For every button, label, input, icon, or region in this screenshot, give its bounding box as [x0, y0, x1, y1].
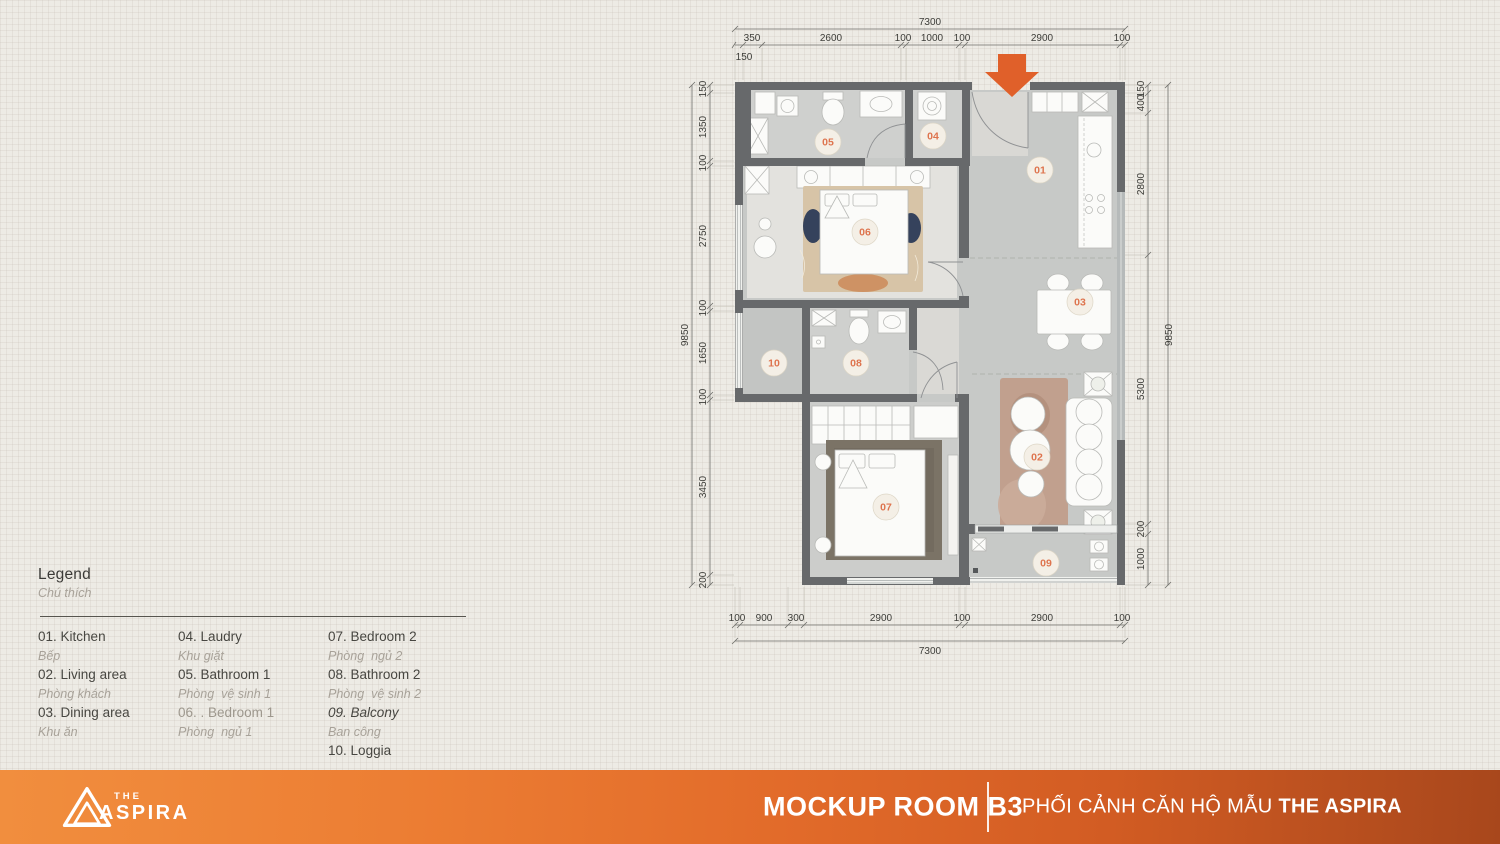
svg-text:1000: 1000: [921, 33, 944, 44]
legend-label: Loggia: [351, 743, 392, 758]
svg-text:9850: 9850: [680, 323, 691, 346]
room-badge-laundry: 04: [920, 123, 946, 149]
svg-text:2800: 2800: [1136, 172, 1147, 195]
svg-text:1650: 1650: [698, 341, 709, 364]
living-furniture: [998, 372, 1112, 534]
legend-label-vi: Phòng khách: [38, 685, 178, 704]
legend-column-1: 01. Kitchen Bếp 02. Living area Phòng kh…: [38, 628, 178, 762]
svg-text:09: 09: [1040, 558, 1052, 570]
legend-label: Bedroom 1: [208, 705, 274, 720]
floor-plan-drawing: 7300 350 2600 100 1000 100 2900 100 150 …: [680, 0, 1180, 660]
aspira-logo-text: THE ASPIRA: [99, 791, 190, 825]
room-badge-bedroom-2: 07: [873, 494, 899, 520]
room-badge-bedroom-1: 06: [852, 219, 878, 245]
footer-bar: THE ASPIRA MOCKUP ROOM B3 PHỐI CẢNH CĂN …: [0, 770, 1500, 844]
legend-label: Living area: [61, 667, 127, 682]
svg-text:2900: 2900: [1031, 613, 1054, 624]
room-badge-dining-area: 03: [1067, 289, 1093, 315]
legend-label-vi: Phòng vệ sinh 1: [178, 685, 328, 704]
svg-text:100: 100: [895, 33, 912, 44]
legend-item-dining-area: 03. Dining area Khu ăn: [38, 704, 178, 741]
legend-num: 05.: [178, 667, 197, 682]
svg-text:2750: 2750: [698, 224, 709, 247]
room-badge-balcony: 09: [1033, 550, 1059, 576]
legend-label: Dining area: [61, 705, 130, 720]
legend-label-vi: Khu ăn: [38, 723, 178, 742]
svg-text:01: 01: [1034, 165, 1046, 177]
svg-text:100: 100: [954, 613, 971, 624]
legend-item-bedroom-1: 06. . Bedroom 1 Phòng ngủ 1: [178, 704, 328, 741]
legend-label: Laudry: [201, 629, 242, 644]
svg-text:1350: 1350: [698, 115, 709, 138]
svg-text:100: 100: [729, 613, 746, 624]
footer-caption: PHỐI CẢNH CĂN HỘ MẪUTHE ASPIRA: [1022, 796, 1402, 819]
legend-item-laundry: 04. Laudry Khu giặt: [178, 628, 328, 665]
legend-label-vi: Bếp: [38, 647, 178, 666]
slide-page: { "legend": { "title": "Legend", "subtit…: [0, 0, 1500, 844]
legend-item-bathroom-1: 05. Bathroom 1 Phòng vệ sinh 1: [178, 666, 328, 703]
svg-text:300: 300: [788, 613, 805, 624]
svg-text:9850: 9850: [1164, 323, 1175, 346]
legend-label: Bathroom 1: [201, 667, 271, 682]
svg-text:2900: 2900: [870, 613, 893, 624]
svg-text:150: 150: [736, 52, 753, 63]
svg-text:7300: 7300: [919, 646, 942, 657]
legend-item-bathroom-2: 08. Bathroom 2 Phòng vệ sinh 2: [328, 666, 468, 703]
aspira-logo: THE ASPIRA: [62, 786, 190, 828]
svg-text:04: 04: [927, 131, 939, 143]
room-badge-bathroom-2: 08: [843, 350, 869, 376]
svg-text:08: 08: [850, 358, 862, 370]
legend-item-loggia: 10. Loggia: [328, 742, 468, 761]
svg-text:02: 02: [1031, 452, 1043, 464]
svg-text:03: 03: [1074, 297, 1086, 309]
svg-text:5300: 5300: [1136, 377, 1147, 400]
legend-num: 03.: [38, 705, 57, 720]
floor-plan: 7300 350 2600 100 1000 100 2900 100 150 …: [680, 0, 1180, 660]
legend: Legend Chú thích 01. Kitchen Bếp 02. Liv…: [38, 566, 508, 762]
svg-text:06: 06: [859, 227, 871, 239]
legend-num: 02.: [38, 667, 57, 682]
svg-text:1000: 1000: [1136, 547, 1147, 570]
legend-label-vi: Khu giặt: [178, 647, 328, 666]
svg-text:100: 100: [1114, 33, 1131, 44]
svg-text:10: 10: [768, 358, 780, 370]
caption-brand: THE ASPIRA: [1278, 796, 1401, 818]
svg-text:400: 400: [1136, 94, 1147, 111]
legend-item-kitchen: 01. Kitchen Bếp: [38, 628, 178, 665]
legend-num: 06. .: [178, 705, 204, 720]
logo-the: THE: [114, 791, 190, 802]
room-badge-living-area: 02: [1024, 444, 1050, 470]
room-badge-kitchen: 01: [1027, 157, 1053, 183]
svg-text:150: 150: [698, 80, 709, 97]
svg-text:100: 100: [954, 33, 971, 44]
legend-label: Bedroom 2: [351, 629, 417, 644]
legend-item-balcony: 09. Balcony Ban công: [328, 704, 468, 741]
legend-columns: 01. Kitchen Bếp 02. Living area Phòng kh…: [38, 628, 508, 762]
legend-title: Legend: [38, 566, 508, 584]
svg-text:900: 900: [756, 613, 773, 624]
svg-text:100: 100: [1114, 613, 1131, 624]
legend-num: 04.: [178, 629, 197, 644]
room-badge-bathroom-1: 05: [815, 129, 841, 155]
room-title: MOCKUP ROOM B3: [763, 792, 1023, 823]
svg-text:100: 100: [698, 299, 709, 316]
legend-column-2: 04. Laudry Khu giặt 05. Bathroom 1 Phòng…: [178, 628, 328, 762]
legend-label: Balcony: [351, 705, 399, 720]
legend-num: 08.: [328, 667, 347, 682]
legend-divider: [40, 616, 466, 617]
svg-text:100: 100: [698, 154, 709, 171]
legend-label-vi: Ban công: [328, 723, 468, 742]
logo-name: ASPIRA: [99, 802, 190, 825]
legend-item-bedroom-2: 07. Bedroom 2 Phòng ngủ 2: [328, 628, 468, 665]
svg-text:3450: 3450: [698, 475, 709, 498]
footer-divider: [987, 782, 989, 832]
svg-text:100: 100: [698, 388, 709, 405]
legend-num: 10.: [328, 743, 347, 758]
legend-label-vi: Phòng ngủ 2: [328, 647, 468, 666]
svg-text:2600: 2600: [820, 33, 843, 44]
svg-text:7300: 7300: [919, 17, 942, 28]
caption-text: PHỐI CẢNH CĂN HỘ MẪU: [1022, 796, 1272, 818]
legend-subtitle: Chú thích: [38, 586, 508, 600]
svg-text:05: 05: [822, 137, 834, 149]
room-badge-loggia: 10: [761, 350, 787, 376]
laundry-washer: [918, 92, 946, 120]
svg-text:350: 350: [744, 33, 761, 44]
legend-label: Bathroom 2: [351, 667, 421, 682]
legend-num: 01.: [38, 629, 57, 644]
svg-text:2900: 2900: [1031, 33, 1054, 44]
bedroom2-furniture: [812, 406, 958, 560]
svg-text:07: 07: [880, 502, 892, 514]
svg-text:200: 200: [1136, 520, 1147, 537]
legend-num: 07.: [328, 629, 347, 644]
legend-label-vi: Phòng vệ sinh 2: [328, 685, 468, 704]
legend-column-3: 07. Bedroom 2 Phòng ngủ 2 08. Bathroom 2…: [328, 628, 468, 762]
legend-label: Kitchen: [61, 629, 106, 644]
svg-text:200: 200: [698, 571, 709, 588]
legend-label-vi: Phòng ngủ 1: [178, 723, 328, 742]
legend-item-living-area: 02. Living area Phòng khách: [38, 666, 178, 703]
legend-num: 09.: [328, 705, 347, 720]
